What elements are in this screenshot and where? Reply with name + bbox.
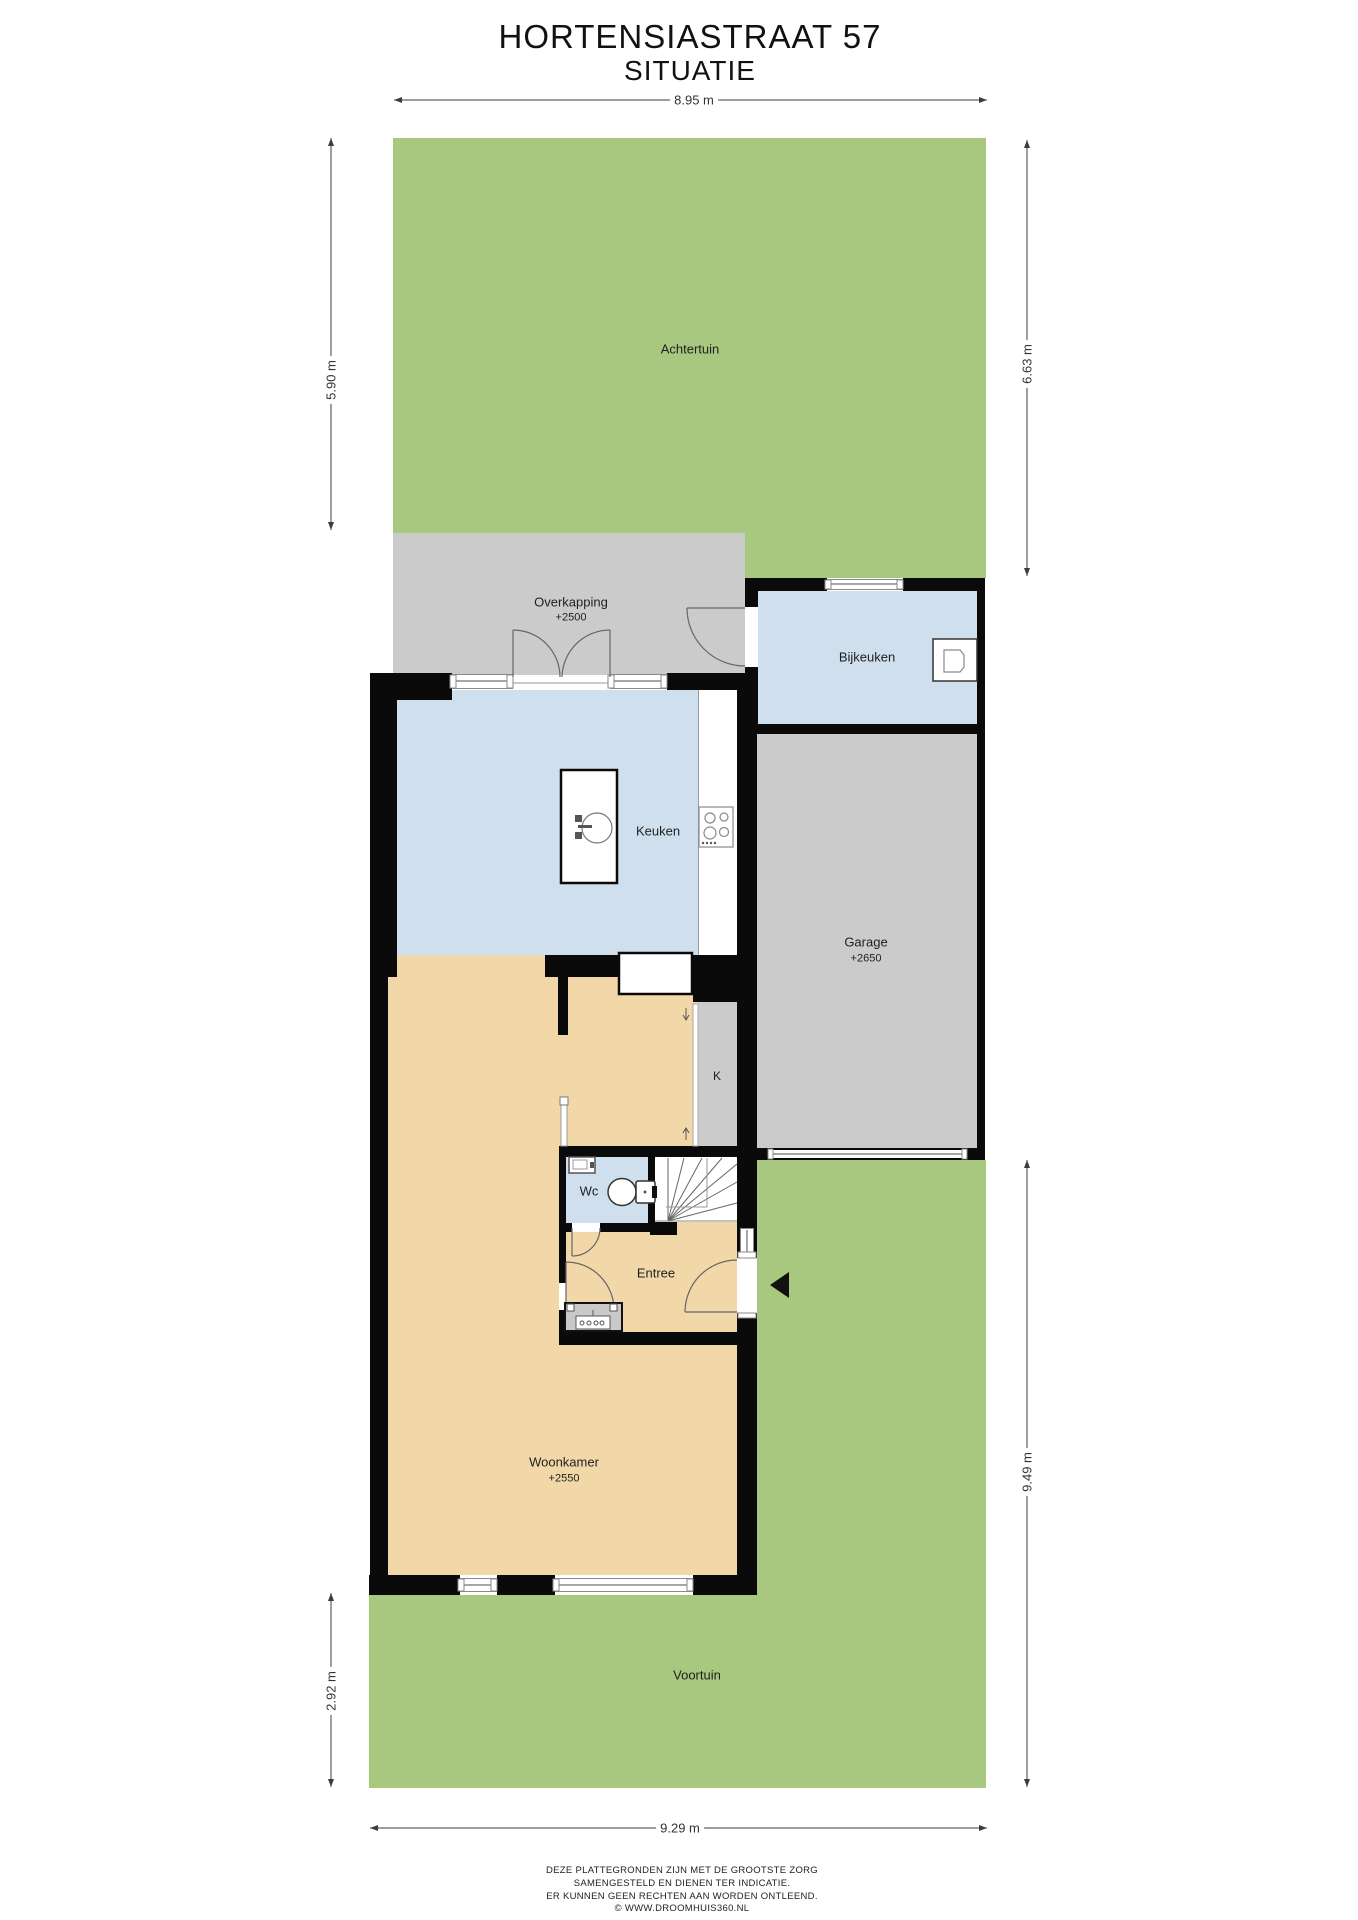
dim-left-lower: 2.92 m [324,1667,339,1715]
footer-line-1: DEZE PLATTEGRONDEN ZIJN MET DE GROOTSTE … [546,1865,818,1876]
stairs-floor [655,1157,737,1222]
wall-front-c [693,1575,757,1595]
wall-front-a [369,1575,460,1595]
window-kitchen-left [452,674,513,689]
label-keuken: Keuken [636,825,680,840]
page-subtitle: SITUATIE [624,55,756,87]
wall-hall-bottom [559,1332,757,1345]
dim-left-upper: 5.90 m [324,356,339,404]
opening-front-door [737,1258,757,1313]
opening-woonkamer-door [559,1283,566,1310]
label-entree: Entree [637,1267,675,1282]
window-bijkeuken [827,579,903,590]
label-achtertuin: Achtertuin [661,343,720,358]
label-voortuin: Voortuin [673,1669,721,1684]
wall-hall-left [559,1146,566,1345]
keuken-floor [397,690,698,955]
label-overkapping-height: +2500 [556,612,587,625]
achtertuin-region [393,138,986,533]
opening-bijkeuken-door [745,607,758,667]
wall-woonkamer-right [737,1345,757,1595]
wall-kitchen-corner [397,690,452,700]
wall-garage-right [977,734,985,1160]
garage-door [768,1150,967,1158]
opening-garden-doors [513,675,610,688]
wall-bijkeuken-top-b [903,578,985,591]
footer-line-3: ER KUNNEN GEEN RECHTEN AAN WORDEN ONTLEE… [546,1891,818,1902]
window-woonkamer-large [555,1578,693,1592]
achtertuin-right-strip [745,533,986,578]
floorplan-page: HORTENSIASTRAAT 57 SITUATIE [0,0,1358,1920]
dim-bottom: 9.29 m [656,1821,704,1836]
kitchen-counter [698,690,737,955]
window-entree-sidelight [740,1228,754,1254]
label-overkapping: Overkapping [534,596,608,611]
footer-line-4: © WWW.DROOMHUIS360.NL [615,1903,750,1914]
wall-kitchen-top-a [370,673,452,690]
window-woonkamer-small [460,1578,497,1592]
label-woonkamer-height: +2550 [549,1473,580,1486]
label-closet-k: K [713,1070,721,1084]
label-woonkamer: Woonkamer [529,1456,599,1471]
label-garage: Garage [844,936,887,951]
wall-garage-left [737,977,757,1160]
dim-right-upper: 6.63 m [1020,340,1035,388]
wall-kitchen-left [370,673,397,977]
voortuin-region [369,1595,986,1788]
wall-stairs-stub [650,1222,677,1235]
footer-line-2: SAMENGESTELD EN DIENEN TER INDICATIE. [574,1878,791,1889]
wall-closet-top [693,955,737,1002]
dim-right-lower: 9.49 m [1020,1448,1035,1496]
wall-stub [558,955,568,1035]
wall-woonkamer-left [370,977,388,1595]
wall-wc-stairs-divider [648,1157,655,1223]
page-title: HORTENSIASTRAAT 57 [499,18,882,56]
label-garage-height: +2650 [851,953,882,966]
label-bijkeuken: Bijkeuken [839,651,895,666]
wall-kitchen-top-b [667,673,757,690]
voortuin-side-strip [757,1160,986,1595]
wc-floor [566,1157,648,1223]
window-kitchen-right [610,674,667,689]
wall-front-b [497,1575,555,1595]
wall-hall-top [559,1146,757,1157]
dim-top: 8.95 m [670,93,718,108]
wall-bijkeuken-right [977,578,985,734]
opening-wc-door [572,1223,600,1232]
label-wc: Wc [580,1185,599,1200]
wall-bijkeuken-garage [757,724,985,734]
